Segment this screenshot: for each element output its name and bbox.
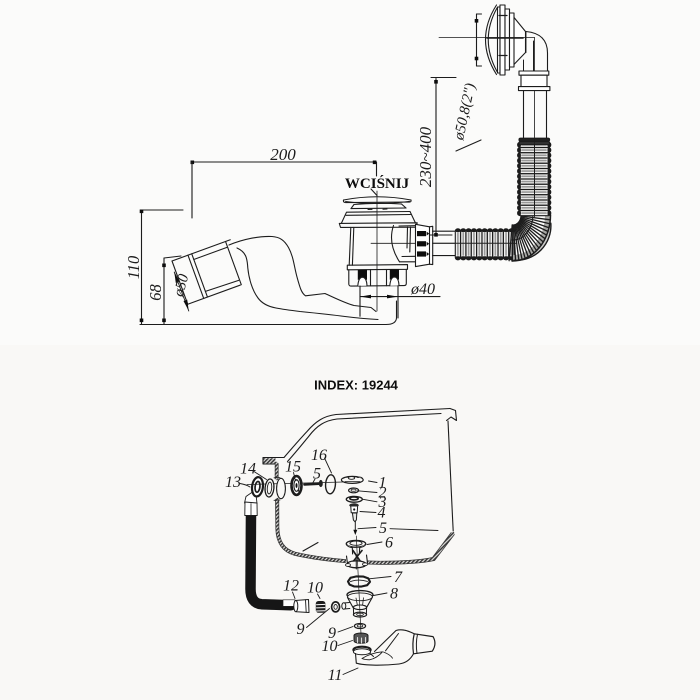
svg-text:15: 15	[285, 459, 301, 476]
svg-text:ø40: ø40	[410, 281, 435, 298]
svg-text:INDEX: 19244: INDEX: 19244	[314, 378, 399, 393]
svg-text:110: 110	[124, 255, 143, 279]
svg-text:WCIŚNIJ: WCIŚNIJ	[345, 175, 410, 192]
svg-text:10: 10	[307, 580, 323, 597]
svg-text:16: 16	[311, 447, 327, 464]
svg-text:6: 6	[385, 535, 393, 552]
svg-text:8: 8	[390, 586, 398, 603]
svg-text:68: 68	[146, 284, 165, 301]
svg-text:9: 9	[297, 621, 305, 638]
svg-text:200: 200	[270, 145, 296, 164]
svg-text:4: 4	[378, 505, 386, 522]
svg-text:11: 11	[328, 667, 343, 684]
svg-text:14: 14	[240, 461, 256, 478]
svg-text:230~400: 230~400	[416, 126, 435, 187]
svg-text:13: 13	[225, 474, 241, 491]
svg-text:12: 12	[283, 578, 299, 595]
svg-text:7: 7	[394, 569, 403, 586]
svg-text:10: 10	[322, 638, 338, 655]
